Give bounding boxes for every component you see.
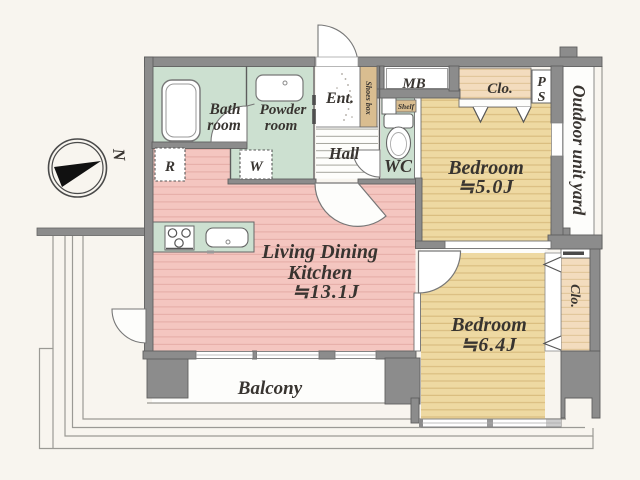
svg-text:Balcony: Balcony — [237, 378, 303, 399]
svg-text:≒6.4J: ≒6.4J — [461, 334, 518, 356]
svg-text:S: S — [538, 90, 546, 105]
svg-text:MB: MB — [401, 76, 425, 92]
svg-text:Shoes box: Shoes box — [364, 81, 373, 115]
svg-text:Clo.: Clo. — [487, 81, 512, 97]
svg-text:Hall: Hall — [328, 144, 360, 163]
svg-text:WC: WC — [384, 156, 413, 176]
svg-text:Bedroom: Bedroom — [450, 314, 527, 336]
svg-text:Clo.: Clo. — [567, 284, 582, 308]
svg-text:≒13.1J: ≒13.1J — [292, 281, 360, 303]
svg-text:Powder: Powder — [260, 102, 307, 118]
svg-text:room: room — [207, 117, 241, 134]
svg-text:Shelf: Shelf — [398, 102, 416, 111]
svg-text:P: P — [537, 75, 546, 90]
svg-text:room: room — [265, 118, 298, 134]
svg-text:W: W — [249, 159, 264, 175]
svg-text:≒5.0J: ≒5.0J — [458, 176, 515, 198]
svg-text:Outdoor unit yard: Outdoor unit yard — [569, 85, 589, 216]
svg-text:Living Dining: Living Dining — [261, 241, 378, 263]
svg-text:Bath: Bath — [208, 101, 240, 118]
svg-text:N: N — [109, 147, 129, 163]
svg-text:Ent.: Ent. — [325, 90, 354, 107]
svg-text:R: R — [164, 159, 175, 175]
